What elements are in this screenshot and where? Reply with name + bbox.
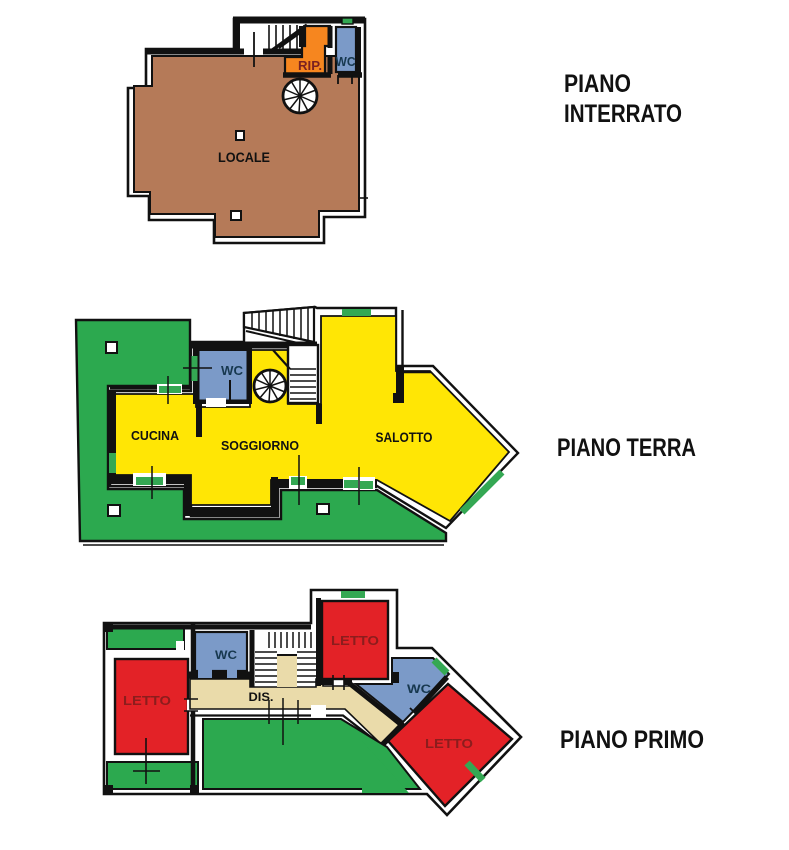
svg-text:INTERRATO: INTERRATO — [564, 100, 682, 128]
svg-text:LETTO: LETTO — [331, 633, 379, 648]
svg-text:LOCALE: LOCALE — [218, 150, 270, 165]
svg-text:CUCINA: CUCINA — [131, 429, 179, 443]
svg-text:WC: WC — [221, 364, 243, 378]
svg-text:PIANO TERRA: PIANO TERRA — [557, 434, 696, 462]
svg-text:PIANO PRIMO: PIANO PRIMO — [560, 726, 704, 754]
svg-text:SALOTTO: SALOTTO — [376, 430, 433, 445]
svg-text:LETTO: LETTO — [123, 693, 171, 708]
svg-text:LETTO: LETTO — [425, 736, 473, 751]
svg-text:SOGGIORNO: SOGGIORNO — [221, 439, 299, 453]
svg-text:WC: WC — [336, 55, 356, 69]
svg-text:PIANO: PIANO — [564, 70, 631, 98]
svg-text:DIS.: DIS. — [249, 690, 274, 704]
svg-text:WC: WC — [215, 648, 237, 662]
svg-text:RIP.: RIP. — [298, 59, 322, 73]
svg-text:WC: WC — [407, 682, 431, 696]
